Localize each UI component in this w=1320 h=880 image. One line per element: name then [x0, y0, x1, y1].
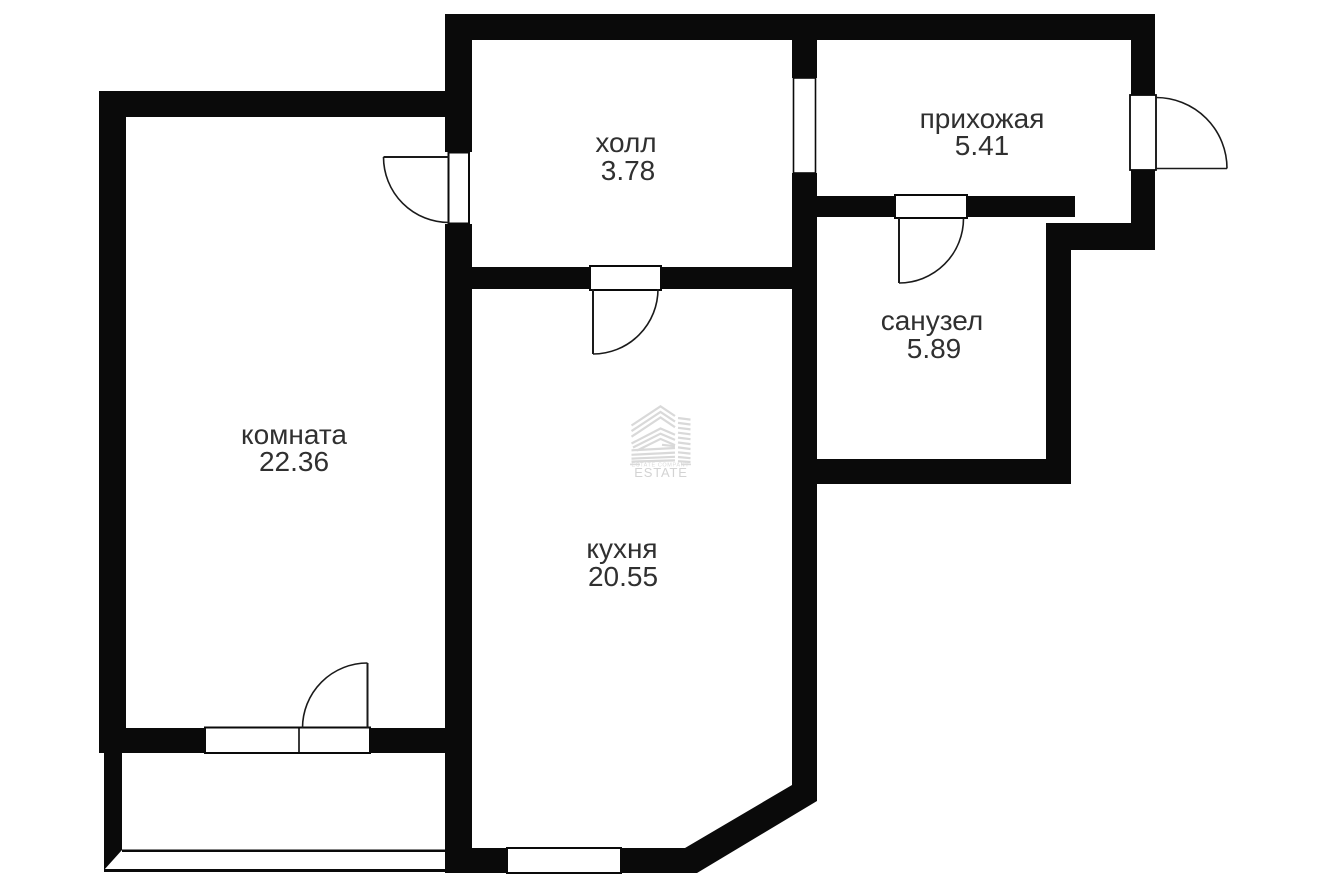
svg-text:20.55: 20.55	[588, 561, 658, 592]
svg-text:22.36: 22.36	[259, 446, 329, 477]
svg-text:5.41: 5.41	[955, 130, 1010, 161]
svg-text:кухня: кухня	[586, 533, 657, 564]
svg-text:санузел: санузел	[881, 305, 984, 336]
svg-text:ESTATE: ESTATE	[634, 465, 687, 480]
svg-text:5.89: 5.89	[907, 333, 962, 364]
svg-text:холл: холл	[595, 127, 656, 158]
svg-text:3.78: 3.78	[601, 155, 656, 186]
